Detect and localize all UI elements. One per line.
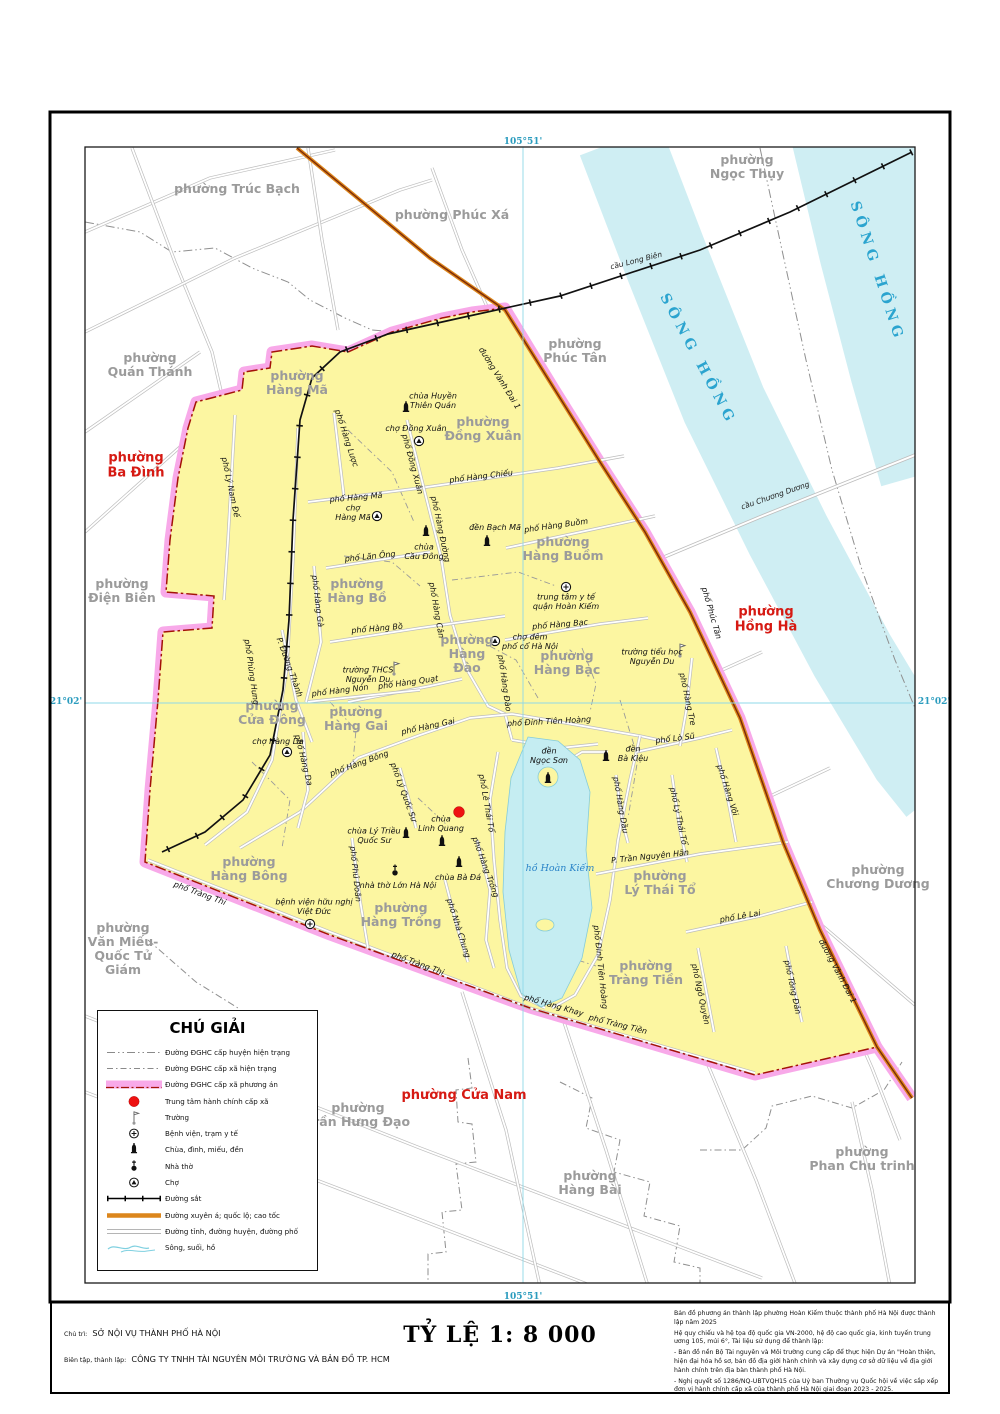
svg-text:hồ Hoàn Kiếm: hồ Hoàn Kiếm	[526, 863, 595, 874]
map-label: phường Cửa Nam	[401, 1088, 526, 1103]
svg-text:phườngPhúc Tân: phườngPhúc Tân	[543, 336, 607, 365]
svg-text:chợ Đồng Xuân: chợ Đồng Xuân	[385, 423, 446, 433]
legend-item: Trung tâm hành chính cấp xã	[98, 1093, 317, 1109]
map-label: phườngHàng Gai	[324, 704, 388, 733]
map-label: phườngĐiện Biên	[88, 576, 156, 605]
map-label: phườngHàng Bạc	[534, 648, 600, 677]
church-icon	[131, 1160, 136, 1170]
market-icon	[130, 1178, 139, 1187]
legend-symbol-road	[103, 1224, 165, 1239]
legend-label: Đường sắt	[165, 1194, 201, 1203]
svg-text:phườngCửa Đông: phườngCửa Đông	[238, 698, 306, 727]
svg-text:chùa HuyềnThiên Quán: chùa HuyềnThiên Quán	[409, 390, 457, 410]
legend-item: Nhà thờ	[98, 1158, 317, 1174]
footer-note: - Nghị quyết số 1286/NQ-UBTVQH15 của Uỷ …	[674, 1378, 940, 1396]
legend-item: Chùa, đình, miếu, đền	[98, 1142, 317, 1158]
market-icon	[372, 511, 381, 520]
legend-symbol-pagoda	[103, 1142, 165, 1157]
svg-text:trường tiểu họcNguyễn Du: trường tiểu họcNguyễn Du	[621, 646, 683, 666]
svg-text:phườngHàng Mã: phườngHàng Mã	[266, 368, 328, 397]
legend-symbol-hwy	[103, 1208, 165, 1223]
market-icon	[282, 747, 291, 756]
legend-item: Chợ	[98, 1174, 317, 1190]
legend-label: Đường xuyên á; quốc lộ; cao tốc	[165, 1211, 280, 1220]
footer: Chủ trì: SỞ NỘI VỤ THÀNH PHỐ HÀ NỘI Biên…	[50, 1302, 950, 1394]
legend-label: Chợ	[165, 1178, 179, 1187]
svg-text:phườngHàng Bạc: phườngHàng Bạc	[534, 648, 600, 677]
legend-item: Sông, suối, hồ	[98, 1240, 317, 1256]
svg-text:phườngLý Thái Tổ: phườngLý Thái Tổ	[624, 868, 696, 897]
map-label: phườngHàng Bồ	[327, 576, 387, 605]
map-label: 21°02'	[918, 697, 950, 707]
legend-symbol-rail	[103, 1191, 165, 1206]
legend-label: Nhà thờ	[165, 1162, 193, 1171]
svg-text:phườngBa Đình: phườngBa Đình	[107, 451, 164, 481]
svg-text:105°51': 105°51'	[504, 137, 543, 147]
legend-label: Trường	[165, 1113, 189, 1122]
school-icon	[132, 1112, 138, 1125]
map-label: phường Trúc Bạch	[174, 181, 300, 196]
legend-label: Đường ĐGHC cấp xã hiện trạng	[165, 1064, 277, 1073]
legend-label: Đường ĐGHC cấp huyện hiện trạng	[165, 1048, 290, 1057]
legend-symbol-bnd-x	[103, 1061, 165, 1076]
legend-symbol-hosp	[103, 1126, 165, 1141]
map-label: phườngPhúc Tân	[543, 336, 607, 365]
legend-label: Đường tỉnh, đường huyện, đường phố	[165, 1227, 298, 1236]
svg-text:21°02': 21°02'	[50, 697, 82, 707]
legend-box: CHÚ GIẢI Đường ĐGHC cấp huyện hiện trạng…	[97, 1010, 318, 1271]
pagoda-icon	[131, 1143, 137, 1153]
credit-value-2: CÔNG TY TNHH TÀI NGUYÊN MÔI TRƯỜNG VÀ BẢ…	[131, 1354, 389, 1364]
svg-text:phườngHồng Hà: phườngHồng Hà	[735, 605, 798, 635]
legend-item: Đường ĐGHC cấp xã hiện trạng	[98, 1060, 317, 1076]
legend-symbol-school	[103, 1110, 165, 1125]
svg-text:21°02': 21°02'	[918, 697, 950, 707]
map-label: phườngBa Đình	[107, 451, 164, 481]
map-sheet: BẢN ĐỒ PHƯƠNG ÁN THÀNH LẬP PHƯỜNG HOÀN K…	[0, 0, 1000, 1414]
svg-text:phườngHàng Bài: phườngHàng Bài	[558, 1168, 621, 1197]
credit-label-2: Biên tập, thành lập:	[64, 1357, 126, 1364]
svg-text:phườngHàng Bồ: phườngHàng Bồ	[327, 576, 387, 605]
svg-text:phườngHàng Gai: phườngHàng Gai	[324, 704, 388, 733]
map-label: phườngTràng Tiền	[609, 958, 683, 987]
legend-symbol-bnd-h	[103, 1045, 165, 1060]
legend-symbol-church	[103, 1159, 165, 1174]
legend-item: Đường sắt	[98, 1191, 317, 1207]
svg-text:phường Phúc Xá: phường Phúc Xá	[395, 207, 509, 222]
map-label: trường tiểu họcNguyễn Du	[621, 646, 683, 666]
legend-item: Đường ĐGHC cấp huyện hiện trạng	[98, 1044, 317, 1060]
map-label: phườngHàng Bài	[558, 1168, 621, 1197]
svg-text:nhà thờ Lớn Hà Nội: nhà thờ Lớn Hà Nội	[360, 880, 438, 890]
center-icon	[454, 807, 465, 818]
footer-note: Hệ quy chiếu và hệ tọa độ quốc gia VN-20…	[674, 1330, 940, 1348]
map-label: chợ Đồng Xuân	[385, 423, 446, 433]
legend-symbol-center	[103, 1094, 165, 1109]
map-label: phườngNgọc Thụy	[710, 152, 784, 181]
legend-symbol-bnd-plan	[103, 1077, 165, 1092]
hosp-icon	[130, 1129, 139, 1138]
legend-symbol-market	[103, 1175, 165, 1190]
hosp-icon	[561, 582, 570, 591]
svg-text:đền Bạch Mã: đền Bạch Mã	[469, 522, 521, 532]
legend-label: Sông, suối, hồ	[165, 1243, 215, 1252]
svg-text:trung tâm y tếquận Hoàn Kiếm: trung tâm y tếquận Hoàn Kiếm	[533, 591, 599, 611]
footer-note: Bản đồ phương án thành lập phường Hoàn K…	[674, 1310, 940, 1328]
map-label: nhà thờ Lớn Hà Nội	[360, 880, 438, 890]
svg-text:phườngTràng Tiền: phườngTràng Tiền	[609, 958, 683, 987]
legend-item: Trường	[98, 1109, 317, 1125]
footer-notes: Bản đồ phương án thành lập phường Hoàn K…	[674, 1310, 940, 1397]
map-label: phường Phúc Xá	[395, 207, 509, 222]
map-label: phườngHồng Hà	[735, 605, 798, 635]
svg-text:phườngĐiện Biên: phườngĐiện Biên	[88, 576, 156, 605]
svg-text:chùa Bà Đá: chùa Bà Đá	[435, 873, 481, 882]
legend-label: Trung tâm hành chính cấp xã	[165, 1097, 269, 1106]
legend-label: Chùa, đình, miếu, đền	[165, 1145, 243, 1154]
svg-text:phườngNgọc Thụy: phườngNgọc Thụy	[710, 152, 784, 181]
legend-item: Bệnh viện, trạm y tế	[98, 1125, 317, 1141]
map-label: hồ Hoàn Kiếm	[526, 863, 595, 874]
svg-text:phường Trúc Bạch: phường Trúc Bạch	[174, 181, 300, 196]
map-label: 21°02'	[50, 697, 82, 707]
footer-note: - Bản đồ nền Bộ Tài nguyên và Môi trường…	[674, 1349, 940, 1375]
legend-item: Đường xuyên á; quốc lộ; cao tốc	[98, 1207, 317, 1223]
svg-text:phường Cửa Nam: phường Cửa Nam	[401, 1088, 526, 1103]
center-icon	[129, 1096, 139, 1106]
map-label: phườngLý Thái Tổ	[624, 868, 696, 897]
map-label: chùa HuyềnThiên Quán	[409, 390, 457, 410]
legend-label: Bệnh viện, trạm y tế	[165, 1129, 238, 1138]
market-icon	[414, 436, 423, 445]
map-label: phườngHàng Mã	[266, 368, 328, 397]
legend-label: Đường ĐGHC cấp xã phương án	[165, 1080, 278, 1089]
map-label: trung tâm y tếquận Hoàn Kiếm	[533, 591, 599, 611]
lake-island	[536, 919, 554, 931]
legend-item: Đường tỉnh, đường huyện, đường phố	[98, 1223, 317, 1239]
map-label: chùa Bà Đá	[435, 873, 481, 882]
map-label: đền Bạch Mã	[469, 522, 521, 532]
legend-symbol-water	[103, 1240, 165, 1255]
legend-item: Đường ĐGHC cấp xã phương án	[98, 1077, 317, 1093]
hosp-icon	[305, 919, 314, 928]
map-label: 105°51'	[504, 137, 543, 147]
legend-rows: Đường ĐGHC cấp huyện hiện trạngĐường ĐGH…	[98, 1044, 317, 1256]
legend-title: CHÚ GIẢI	[98, 1019, 317, 1037]
map-label: phườngCửa Đông	[238, 698, 306, 727]
